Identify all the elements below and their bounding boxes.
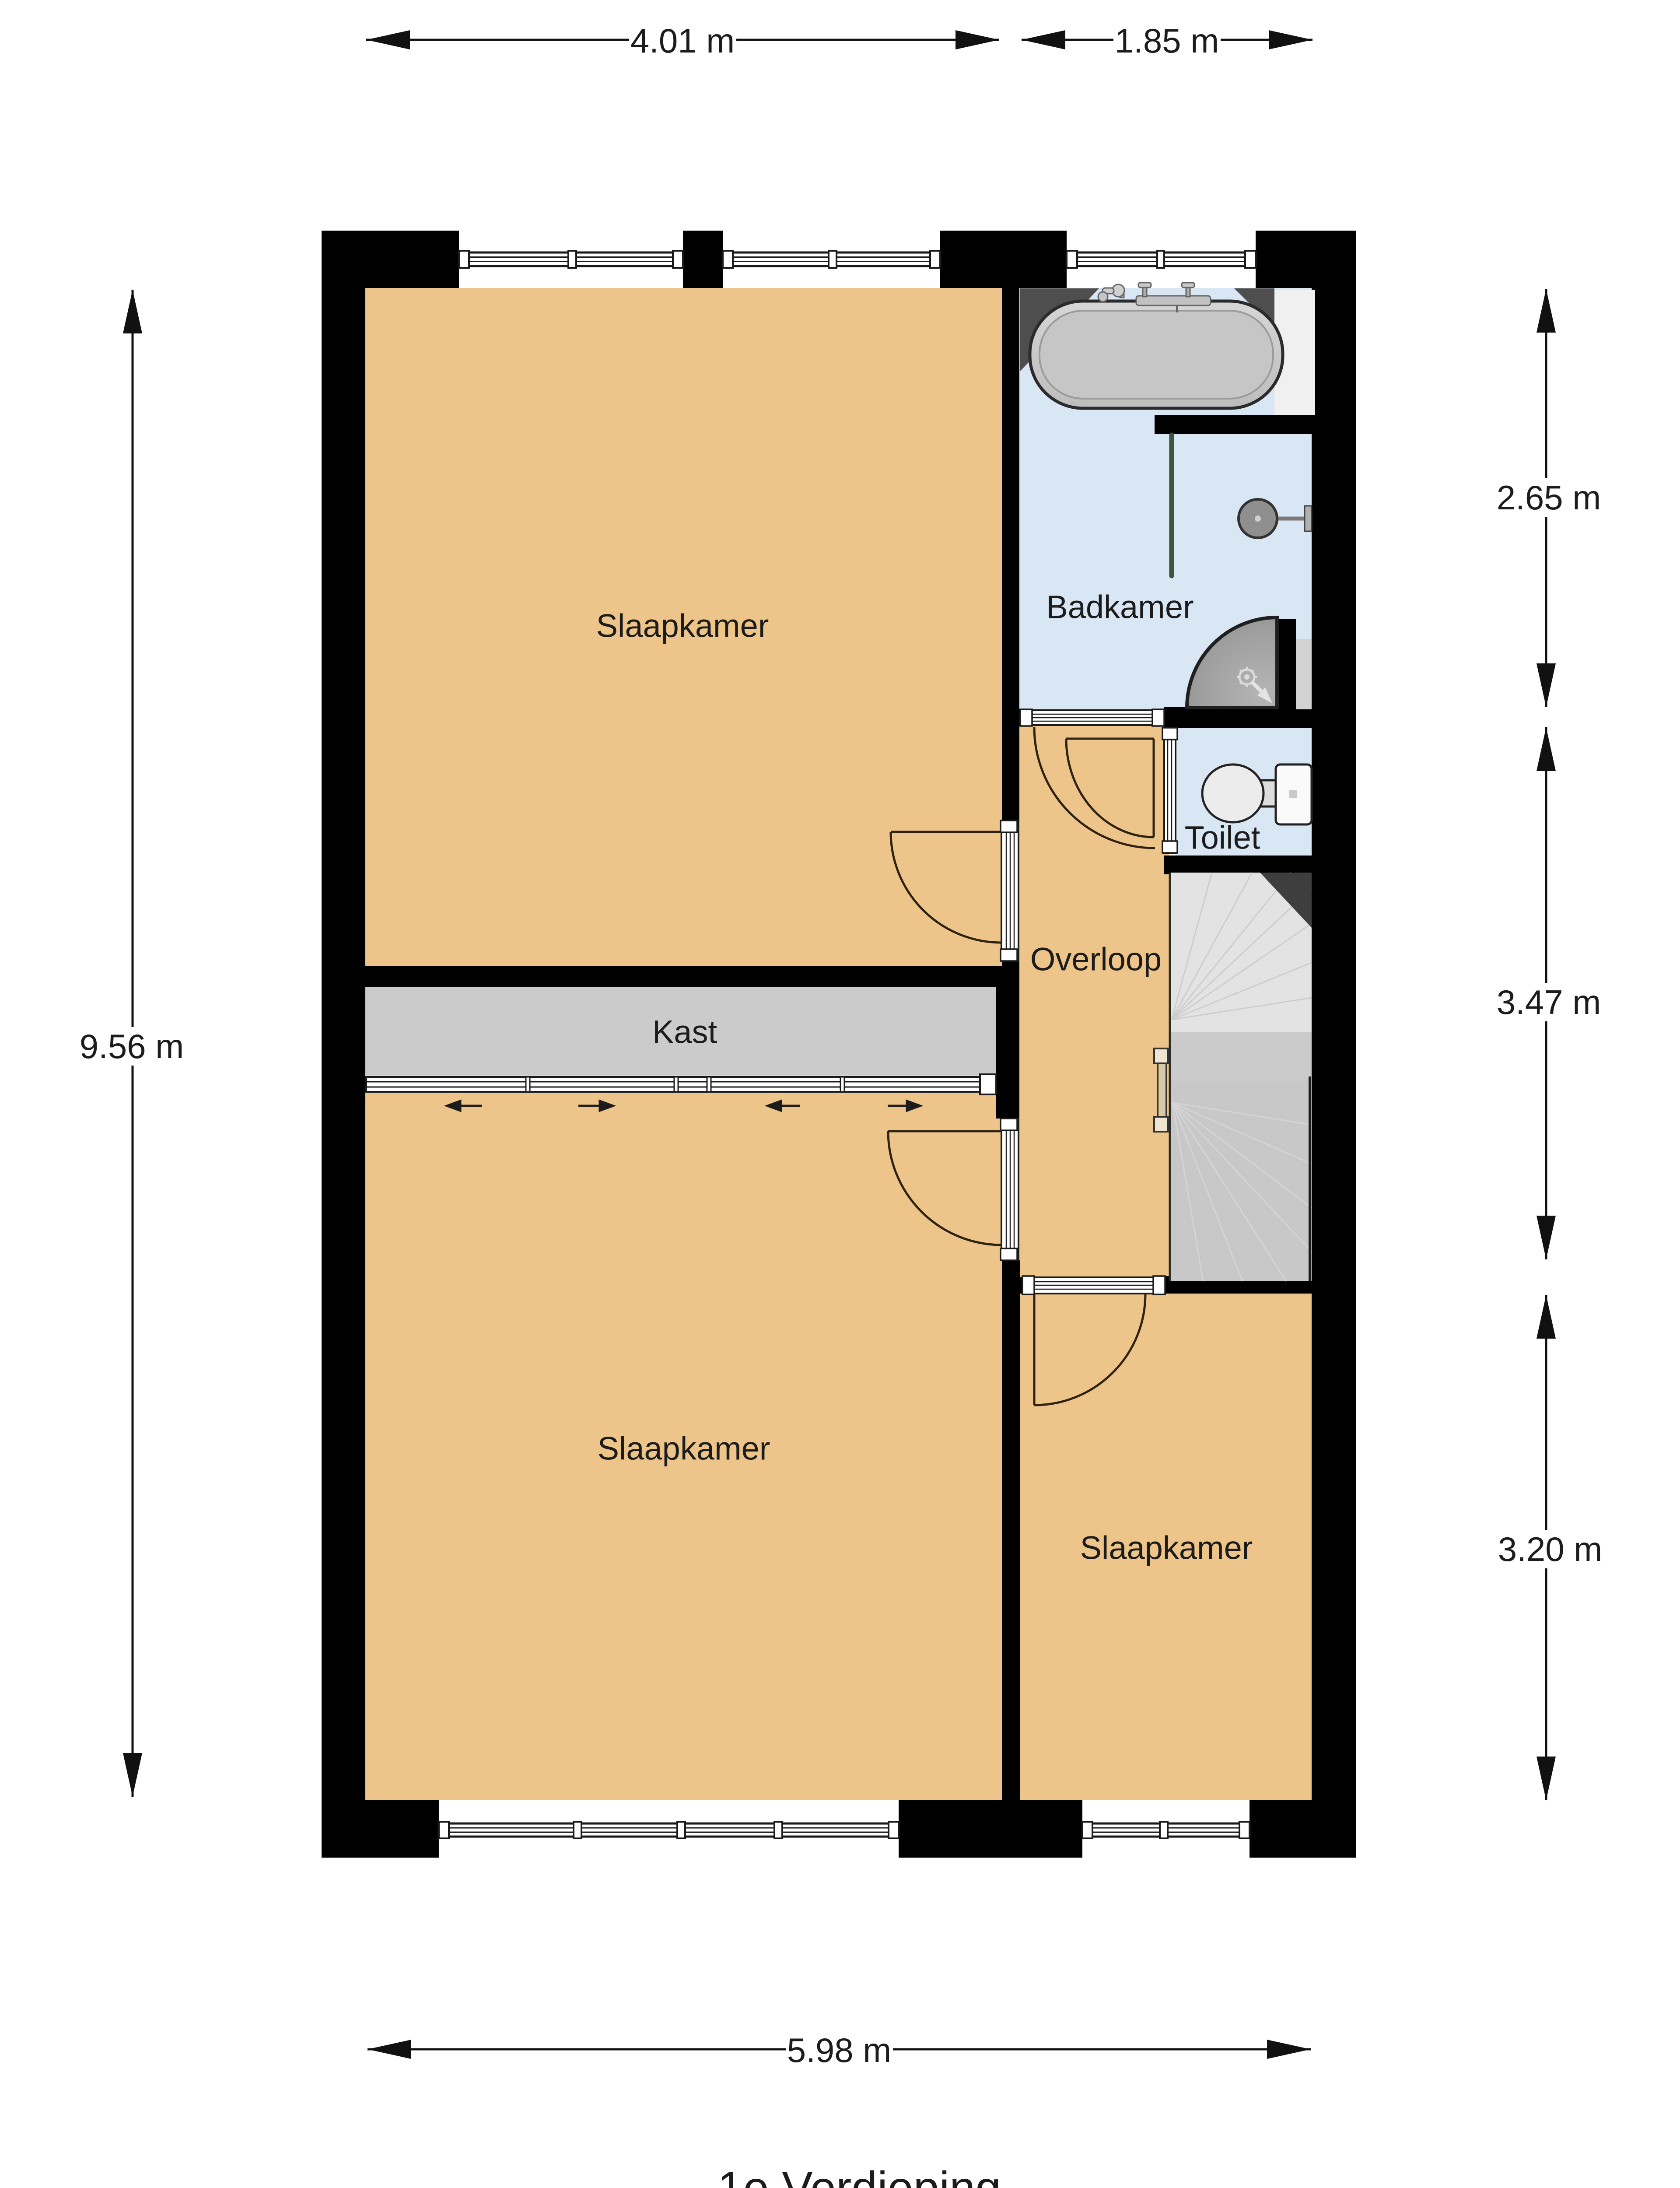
svg-text:5.98 m: 5.98 m xyxy=(787,2031,891,2069)
svg-text:9.56 m: 9.56 m xyxy=(80,1027,184,1066)
svg-text:1.85 m: 1.85 m xyxy=(1115,21,1219,60)
svg-text:2.65 m: 2.65 m xyxy=(1497,478,1601,517)
svg-text:Badkamer: Badkamer xyxy=(1046,589,1193,625)
svg-text:Slaapkamer: Slaapkamer xyxy=(598,1431,770,1467)
svg-text:Kast: Kast xyxy=(652,1014,717,1050)
svg-text:3.47 m: 3.47 m xyxy=(1497,983,1601,1021)
svg-text:4.01 m: 4.01 m xyxy=(630,21,735,60)
svg-text:3.20 m: 3.20 m xyxy=(1498,1530,1602,1568)
svg-text:1e Verdieping: 1e Verdieping xyxy=(717,2162,1001,2188)
svg-text:Toilet: Toilet xyxy=(1185,820,1260,856)
svg-text:Overloop: Overloop xyxy=(1030,941,1162,978)
svg-text:Slaapkamer: Slaapkamer xyxy=(596,608,769,644)
svg-text:Slaapkamer: Slaapkamer xyxy=(1080,1530,1253,1566)
